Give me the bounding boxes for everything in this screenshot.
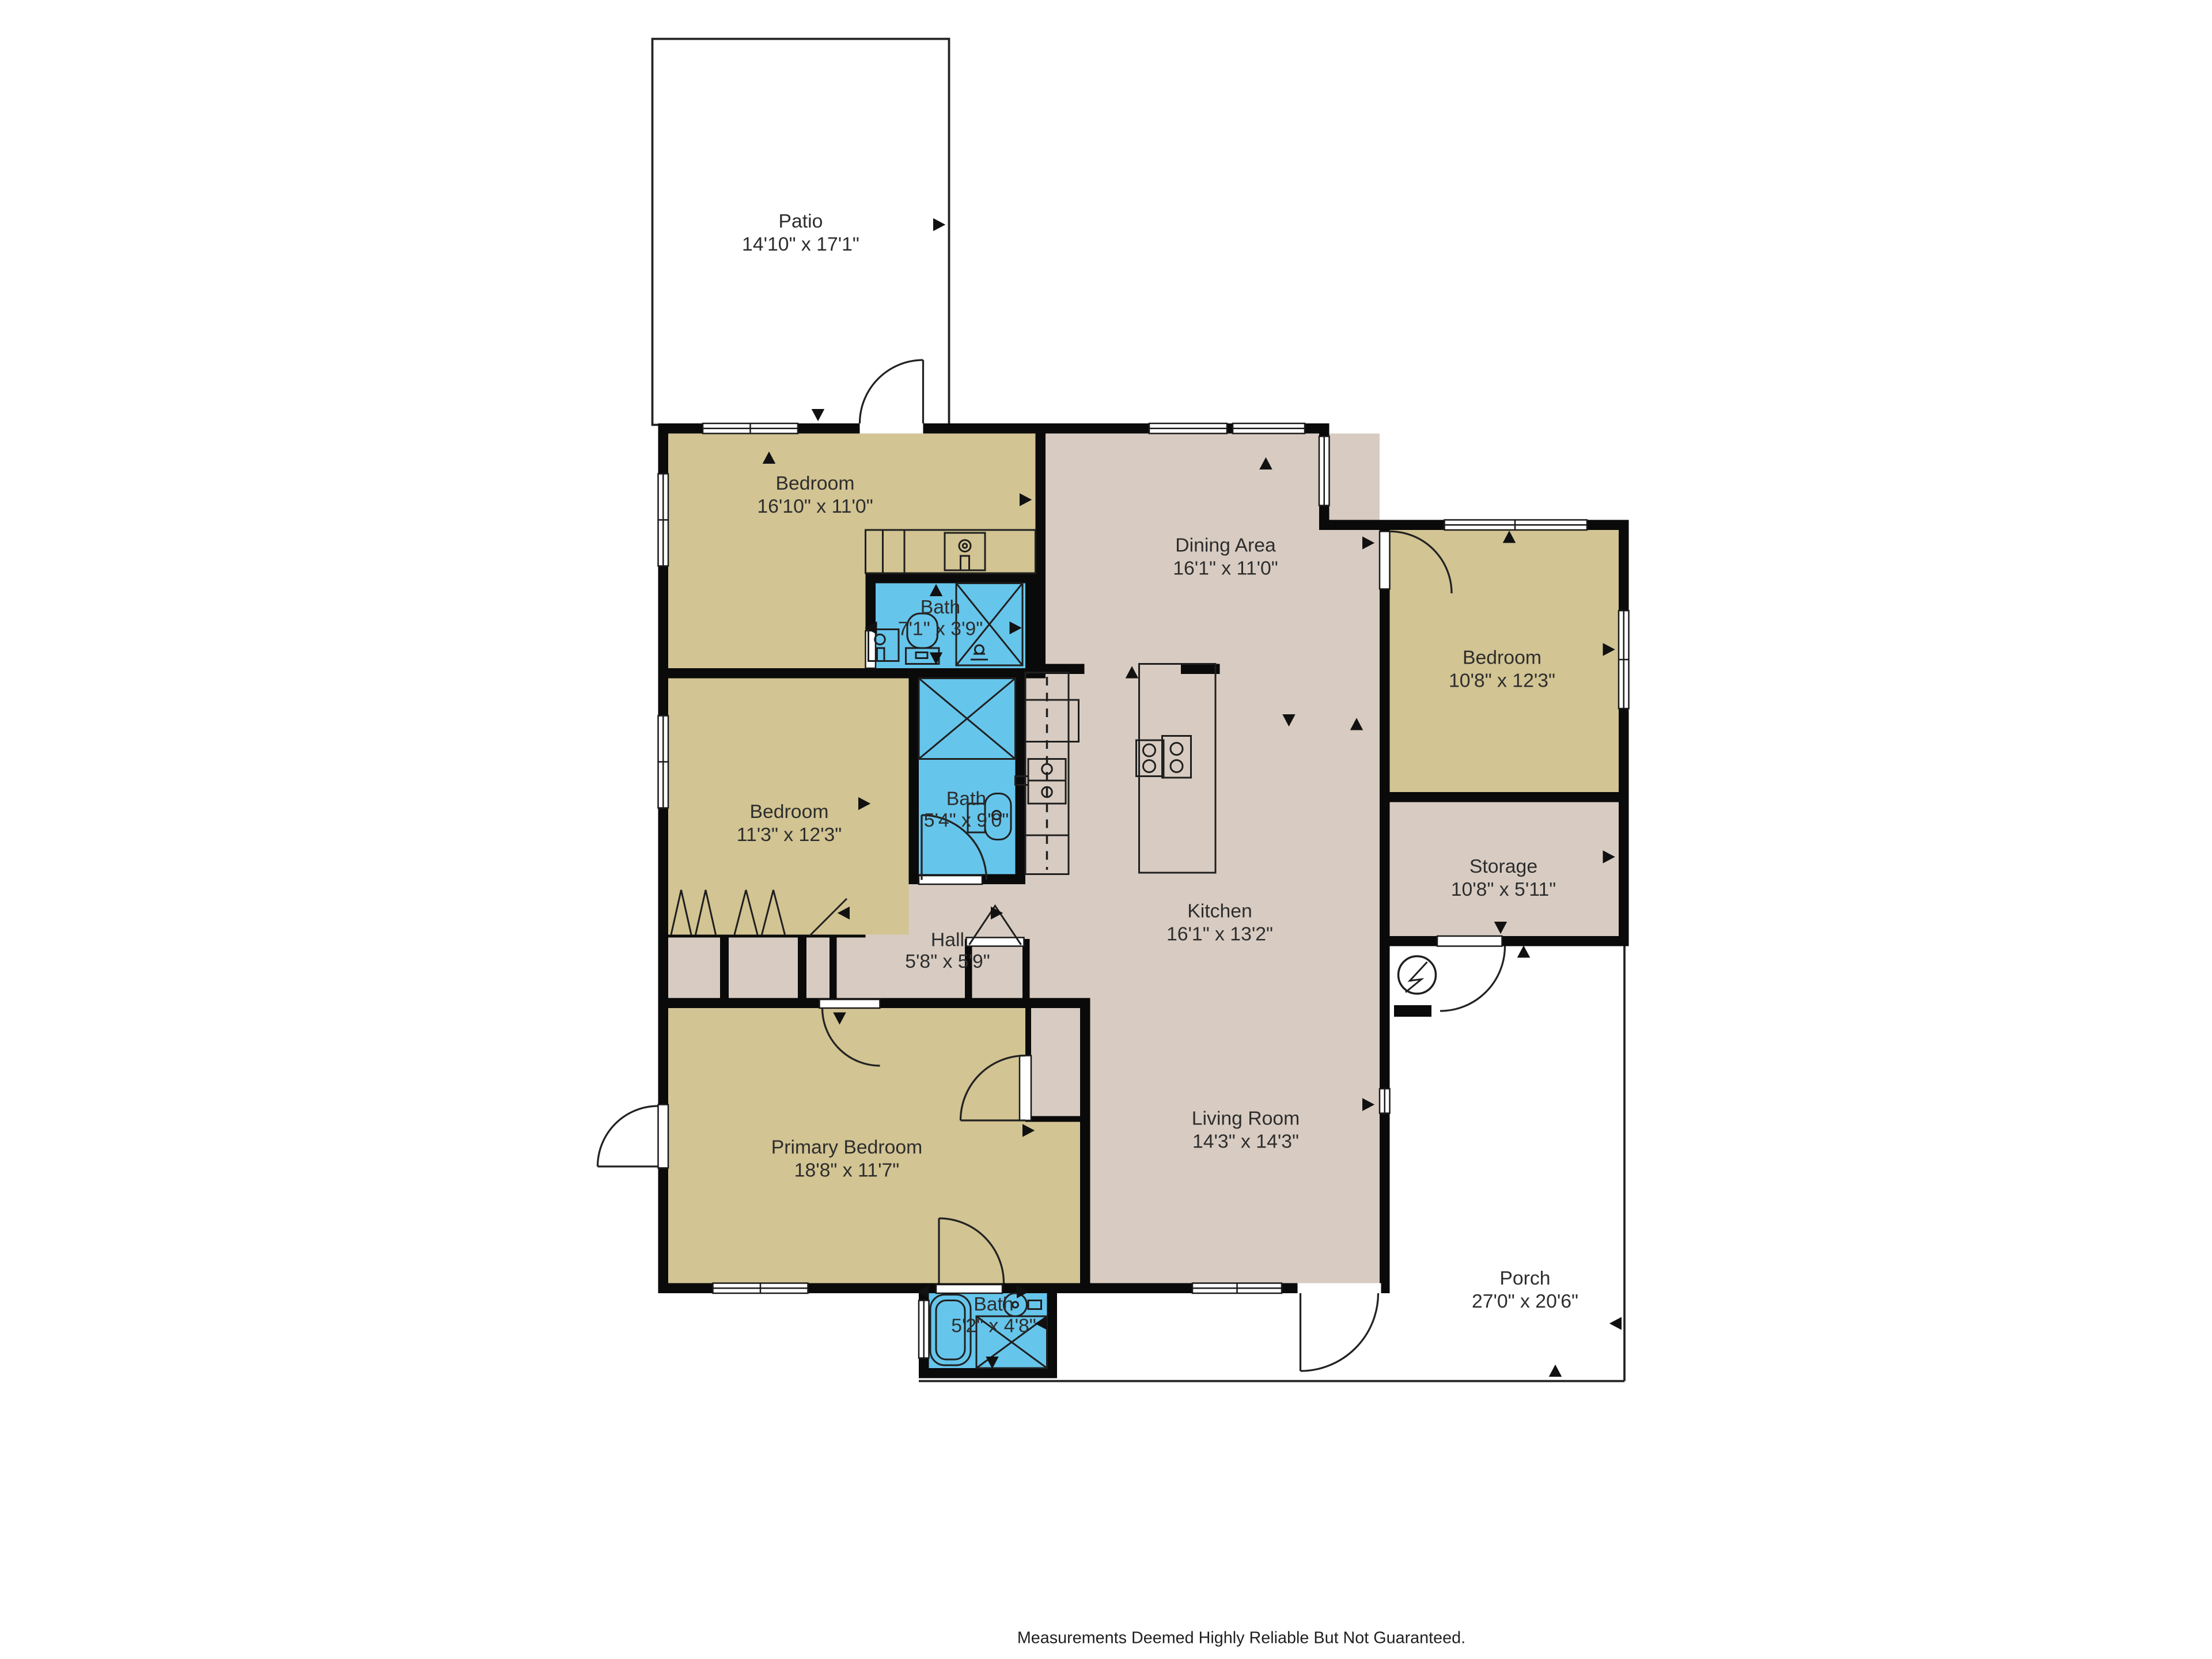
door-opening bbox=[1020, 1056, 1031, 1121]
room-label-dining: Dining Area 16'1" x 11'0" bbox=[1173, 535, 1278, 581]
room-name: Living Room bbox=[1192, 1108, 1300, 1131]
room-dims: 10'8" x 12'3" bbox=[1449, 670, 1555, 693]
room-label-bath-top: Bath 7'1" x 3'9" bbox=[898, 598, 983, 640]
floor-hall-corridor bbox=[837, 935, 909, 1009]
window bbox=[658, 716, 669, 808]
door-opening bbox=[820, 999, 880, 1008]
room-dims: 27'0" x 20'6" bbox=[1472, 1290, 1578, 1313]
floor-plan-page: Patio 14'10" x 17'1" Bedroom 16'10" x 11… bbox=[0, 0, 2212, 1659]
window bbox=[658, 474, 669, 566]
room-dims: 5'8" x 5'9" bbox=[905, 950, 990, 972]
room-label-primary: Primary Bedroom 18'8" x 11'7" bbox=[771, 1137, 923, 1183]
room-label-bedroom-top: Bedroom 16'10" x 11'0" bbox=[757, 472, 873, 518]
room-name: Bath bbox=[898, 598, 983, 619]
room-name: Patio bbox=[742, 210, 859, 233]
room-label-bedroom-mid: Bedroom 11'3" x 12'3" bbox=[737, 801, 842, 847]
window bbox=[1149, 423, 1227, 434]
window bbox=[1233, 423, 1305, 434]
door-arc bbox=[1440, 946, 1505, 1012]
room-name: Dining Area bbox=[1173, 535, 1278, 558]
room-dims: 5'4" x 9'0" bbox=[924, 809, 1009, 831]
room-label-patio: Patio 14'10" x 17'1" bbox=[742, 210, 859, 256]
door-opening bbox=[866, 631, 876, 668]
door-arc bbox=[1301, 1293, 1378, 1371]
floor-primary-closet bbox=[1025, 1008, 1086, 1122]
floor-plan-canvas bbox=[0, 0, 2212, 1659]
room-name: Bath bbox=[924, 788, 1009, 810]
window bbox=[1619, 611, 1629, 709]
room-label-bedroom-right: Bedroom 10'8" x 12'3" bbox=[1449, 647, 1555, 693]
room-label-hall: Hall 5'8" x 5'9" bbox=[905, 929, 990, 972]
room-dims: 14'10" x 17'1" bbox=[742, 233, 859, 256]
room-label-kitchen: Kitchen 16'1" x 13'2" bbox=[1166, 900, 1273, 946]
room-name: Bedroom bbox=[737, 801, 842, 824]
room-name: Bath bbox=[951, 1293, 1036, 1315]
room-dims: 14'3" x 14'3" bbox=[1192, 1131, 1300, 1154]
window bbox=[1192, 1283, 1282, 1294]
room-name: Bedroom bbox=[1449, 647, 1555, 670]
room-name: Bedroom bbox=[757, 472, 873, 495]
door-opening bbox=[658, 1105, 669, 1168]
room-label-bath-bottom: Bath 5'2" x 4'8" bbox=[951, 1293, 1036, 1336]
room-dims: 7'1" x 3'9" bbox=[898, 619, 983, 639]
disclaimer-text: Measurements Deemed Highly Reliable But … bbox=[1017, 1630, 1465, 1647]
room-dims: 16'10" x 11'0" bbox=[757, 495, 873, 518]
window bbox=[1380, 1089, 1390, 1113]
room-dims: 18'8" x 11'7" bbox=[771, 1160, 923, 1183]
room-dims: 10'8" x 5'11" bbox=[1451, 878, 1556, 902]
room-dims: 16'1" x 13'2" bbox=[1166, 923, 1273, 946]
window bbox=[919, 1301, 929, 1358]
window bbox=[1319, 437, 1330, 506]
window bbox=[1445, 520, 1588, 531]
room-label-bath-mid: Bath 5'4" x 9'0" bbox=[924, 788, 1009, 831]
door-opening bbox=[1298, 1283, 1381, 1294]
room-label-living: Living Room 14'3" x 14'3" bbox=[1192, 1108, 1300, 1154]
floor-bath-mid bbox=[919, 679, 1016, 874]
door-opening bbox=[1437, 936, 1502, 946]
room-name: Porch bbox=[1472, 1267, 1578, 1290]
room-dims: 11'3" x 12'3" bbox=[737, 824, 842, 847]
room-dims: 16'1" x 11'0" bbox=[1173, 558, 1278, 581]
room-name: Kitchen bbox=[1166, 900, 1273, 923]
electric-meter-icon bbox=[1399, 956, 1436, 994]
room-label-porch: Porch 27'0" x 20'6" bbox=[1472, 1267, 1578, 1313]
door-opening bbox=[919, 876, 982, 884]
door-opening bbox=[936, 1285, 1002, 1293]
room-label-storage: Storage 10'8" x 5'11" bbox=[1451, 855, 1556, 902]
window bbox=[713, 1283, 808, 1294]
door-arc bbox=[598, 1106, 658, 1166]
room-name: Storage bbox=[1451, 855, 1556, 878]
room-name: Primary Bedroom bbox=[771, 1137, 923, 1160]
window bbox=[703, 423, 798, 434]
room-dims: 5'2" x 4'8" bbox=[951, 1315, 1036, 1337]
door-opening bbox=[1380, 532, 1390, 589]
door-opening bbox=[860, 423, 923, 434]
room-name: Hall bbox=[905, 929, 990, 951]
